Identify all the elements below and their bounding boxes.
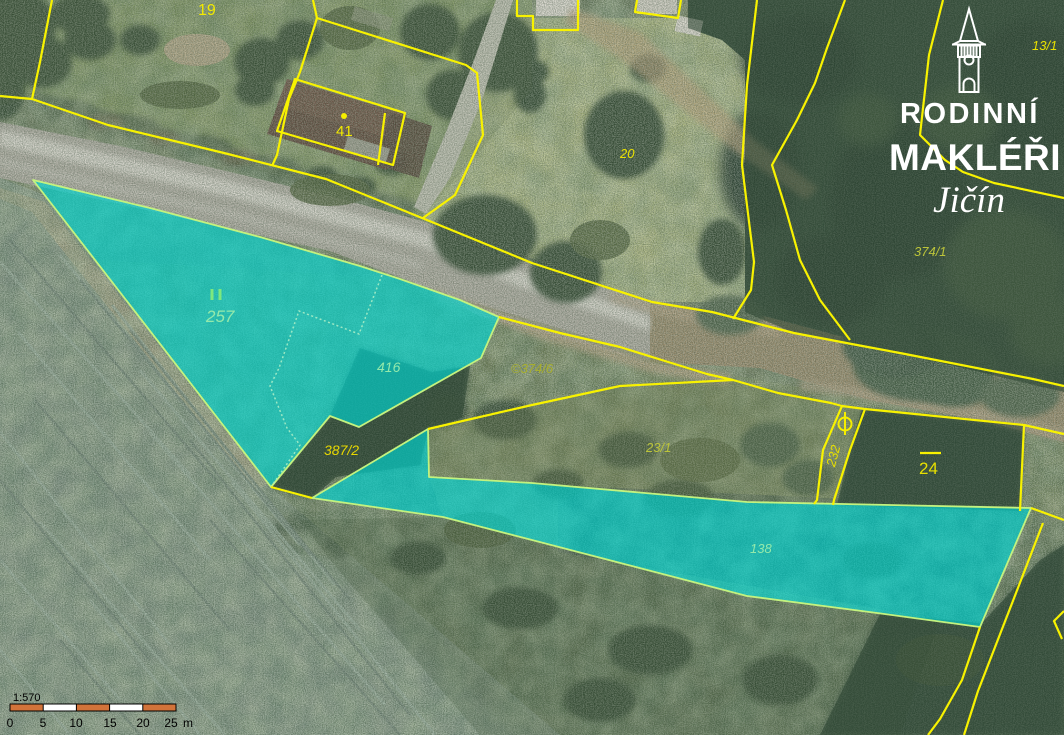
svg-text:MAKLÉŘI: MAKLÉŘI — [889, 136, 1061, 178]
svg-text:41: 41 — [336, 123, 353, 140]
svg-text:19: 19 — [198, 2, 216, 19]
svg-text:257: 257 — [205, 307, 235, 326]
svg-text:m: m — [183, 716, 193, 730]
svg-text:25: 25 — [164, 716, 178, 730]
svg-text:5: 5 — [40, 716, 47, 730]
svg-text:RODINNÍ: RODINNÍ — [900, 96, 1040, 130]
svg-text:15: 15 — [103, 716, 117, 730]
svg-text:374/1: 374/1 — [914, 244, 947, 259]
svg-text:387/2: 387/2 — [324, 442, 359, 458]
svg-text:20: 20 — [619, 146, 635, 161]
svg-text:138: 138 — [750, 541, 772, 556]
svg-text:416: 416 — [377, 359, 401, 375]
svg-text:13/1: 13/1 — [1032, 38, 1057, 53]
svg-text:1:570: 1:570 — [13, 692, 41, 704]
svg-text:24: 24 — [919, 459, 938, 478]
svg-text:©374/6: ©374/6 — [511, 361, 554, 376]
svg-text:10: 10 — [69, 716, 83, 730]
svg-text:20: 20 — [136, 716, 150, 730]
svg-text:23/1: 23/1 — [645, 440, 671, 455]
svg-text:0: 0 — [7, 716, 14, 730]
svg-text:Jičín: Jičín — [933, 180, 1005, 221]
